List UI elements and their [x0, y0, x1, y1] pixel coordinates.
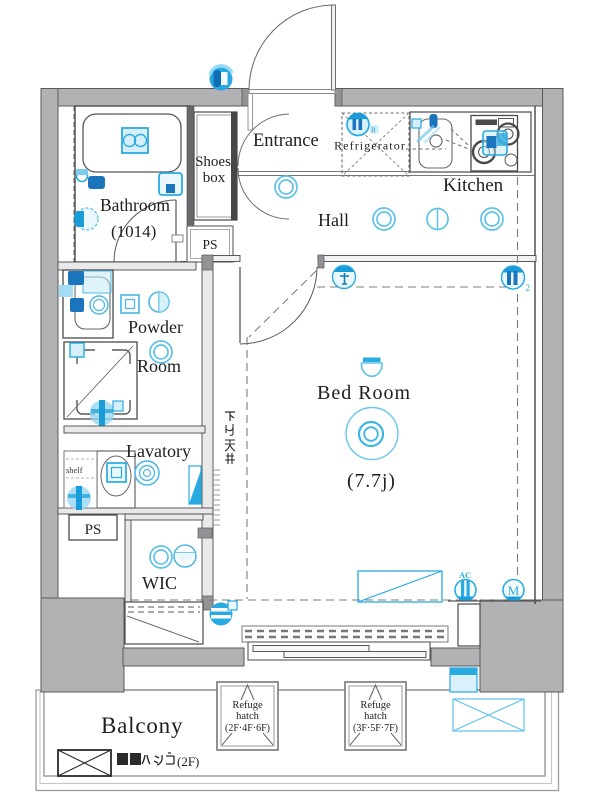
svg-text:Shoes: Shoes	[195, 154, 231, 170]
svg-text:Bathroom: Bathroom	[100, 195, 170, 215]
svg-text:(1014): (1014)	[111, 222, 156, 241]
svg-text:WIC: WIC	[142, 573, 177, 593]
svg-text:box: box	[203, 170, 226, 186]
svg-text:Hall: Hall	[318, 210, 349, 230]
svg-text:Refrigerator: Refrigerator	[334, 139, 406, 153]
svg-text:Refuge: Refuge	[232, 700, 263, 711]
svg-text:Bed Room: Bed Room	[317, 382, 411, 404]
svg-text:Lavatory: Lavatory	[126, 441, 191, 461]
svg-text:Room: Room	[137, 356, 181, 376]
svg-text:M: M	[508, 583, 520, 598]
svg-text:2: 2	[526, 283, 531, 293]
svg-text:(2F): (2F)	[177, 754, 199, 769]
svg-text:shelf: shelf	[66, 465, 83, 475]
svg-text:hatch: hatch	[364, 711, 387, 722]
svg-text:Powder: Powder	[128, 317, 183, 337]
svg-text:hatch: hatch	[236, 711, 259, 722]
svg-text:PS: PS	[85, 522, 102, 538]
svg-text:R: R	[371, 126, 376, 135]
svg-text:PS: PS	[202, 237, 217, 252]
svg-text:Kitchen: Kitchen	[443, 175, 504, 196]
svg-text:Entrance: Entrance	[253, 131, 319, 151]
svg-text:(3F·5F·7F): (3F·5F·7F)	[353, 723, 398, 734]
svg-text:Refuge: Refuge	[360, 700, 391, 711]
svg-text:Balcony: Balcony	[101, 713, 183, 738]
svg-text:(7.7j): (7.7j)	[347, 470, 396, 492]
svg-text:AC: AC	[459, 570, 471, 580]
svg-text:(2F·4F·6F): (2F·4F·6F)	[225, 723, 270, 734]
